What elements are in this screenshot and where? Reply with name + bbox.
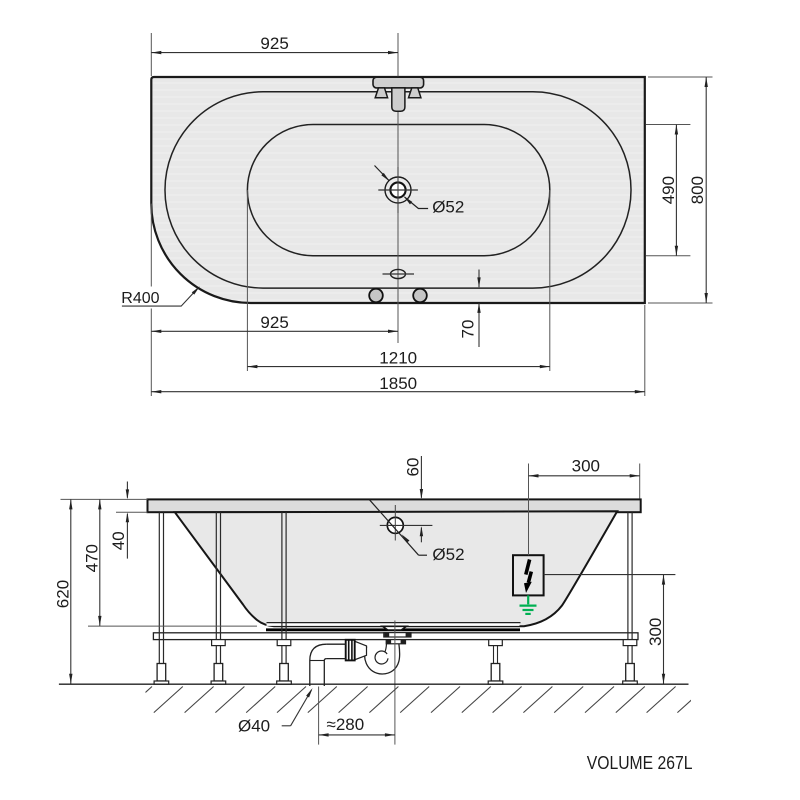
svg-text:620: 620	[54, 580, 73, 608]
svg-text:1210: 1210	[379, 349, 417, 368]
svg-text:70: 70	[459, 320, 478, 339]
svg-text:Ø40: Ø40	[238, 716, 270, 735]
svg-text:Ø52: Ø52	[432, 198, 464, 217]
svg-text:1850: 1850	[379, 374, 417, 393]
svg-text:Ø52: Ø52	[432, 545, 464, 564]
svg-text:300: 300	[572, 456, 600, 475]
svg-text:470: 470	[83, 544, 102, 572]
svg-text:VOLUME 267L: VOLUME 267L	[587, 753, 693, 773]
svg-text:925: 925	[260, 34, 288, 53]
svg-text:60: 60	[403, 458, 422, 477]
svg-text:925: 925	[260, 313, 288, 332]
svg-text:300: 300	[646, 618, 665, 646]
svg-text:800: 800	[688, 176, 707, 204]
svg-text:490: 490	[659, 176, 678, 204]
svg-text:R400: R400	[121, 290, 159, 307]
svg-text:≈280: ≈280	[327, 715, 365, 734]
svg-text:40: 40	[109, 531, 128, 550]
